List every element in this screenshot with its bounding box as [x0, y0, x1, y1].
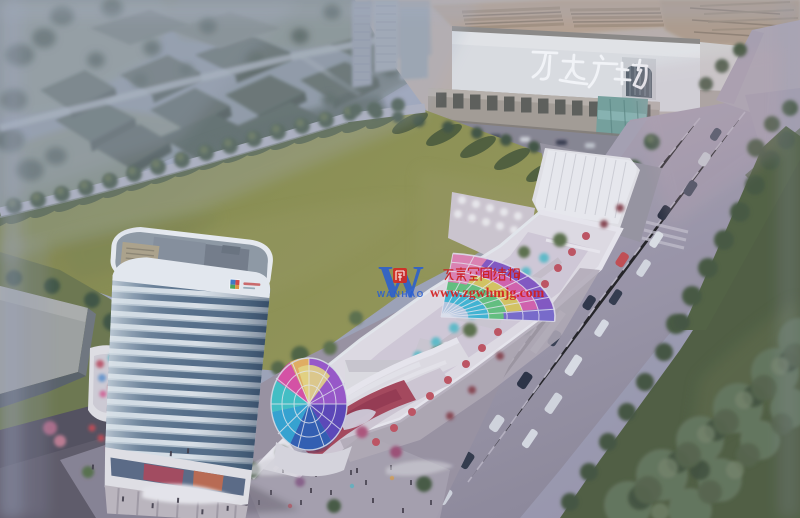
- svg-text:WANHAO: WANHAO: [377, 289, 425, 299]
- svg-text:www.zgwhmjg.com: www.zgwhmjg.com: [430, 285, 545, 300]
